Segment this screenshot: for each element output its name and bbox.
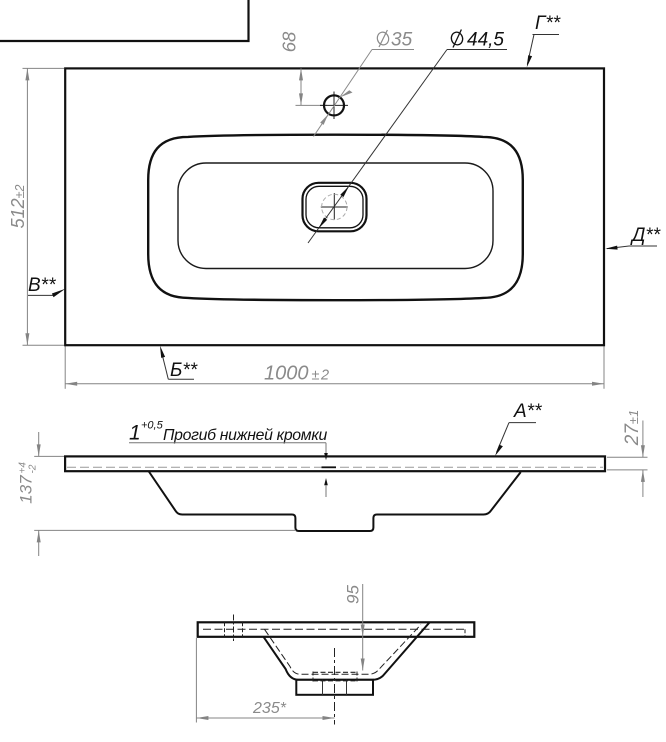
svg-text:Д**: Д** — [630, 225, 661, 246]
svg-text:1000±2: 1000±2 — [264, 363, 329, 385]
svg-text:95: 95 — [344, 585, 363, 604]
svg-text:27±1: 27±1 — [622, 410, 643, 447]
svg-text:Б**: Б** — [170, 360, 198, 381]
svg-text:-2: -2 — [28, 464, 39, 473]
svg-text:Прогиб нижней кромки: Прогиб нижней кромки — [163, 427, 327, 444]
svg-text:68: 68 — [279, 31, 300, 52]
svg-text:44,5: 44,5 — [467, 30, 504, 51]
svg-text:+0,5: +0,5 — [141, 420, 164, 432]
svg-text:А**: А** — [513, 401, 542, 422]
svg-text:Г**: Г** — [535, 13, 561, 34]
svg-text:В**: В** — [28, 275, 56, 296]
svg-text:235*: 235* — [252, 700, 287, 717]
svg-text:35: 35 — [391, 30, 413, 51]
svg-text:1: 1 — [129, 422, 141, 445]
svg-text:137: 137 — [17, 475, 36, 504]
svg-text:512±2: 512±2 — [8, 185, 28, 229]
